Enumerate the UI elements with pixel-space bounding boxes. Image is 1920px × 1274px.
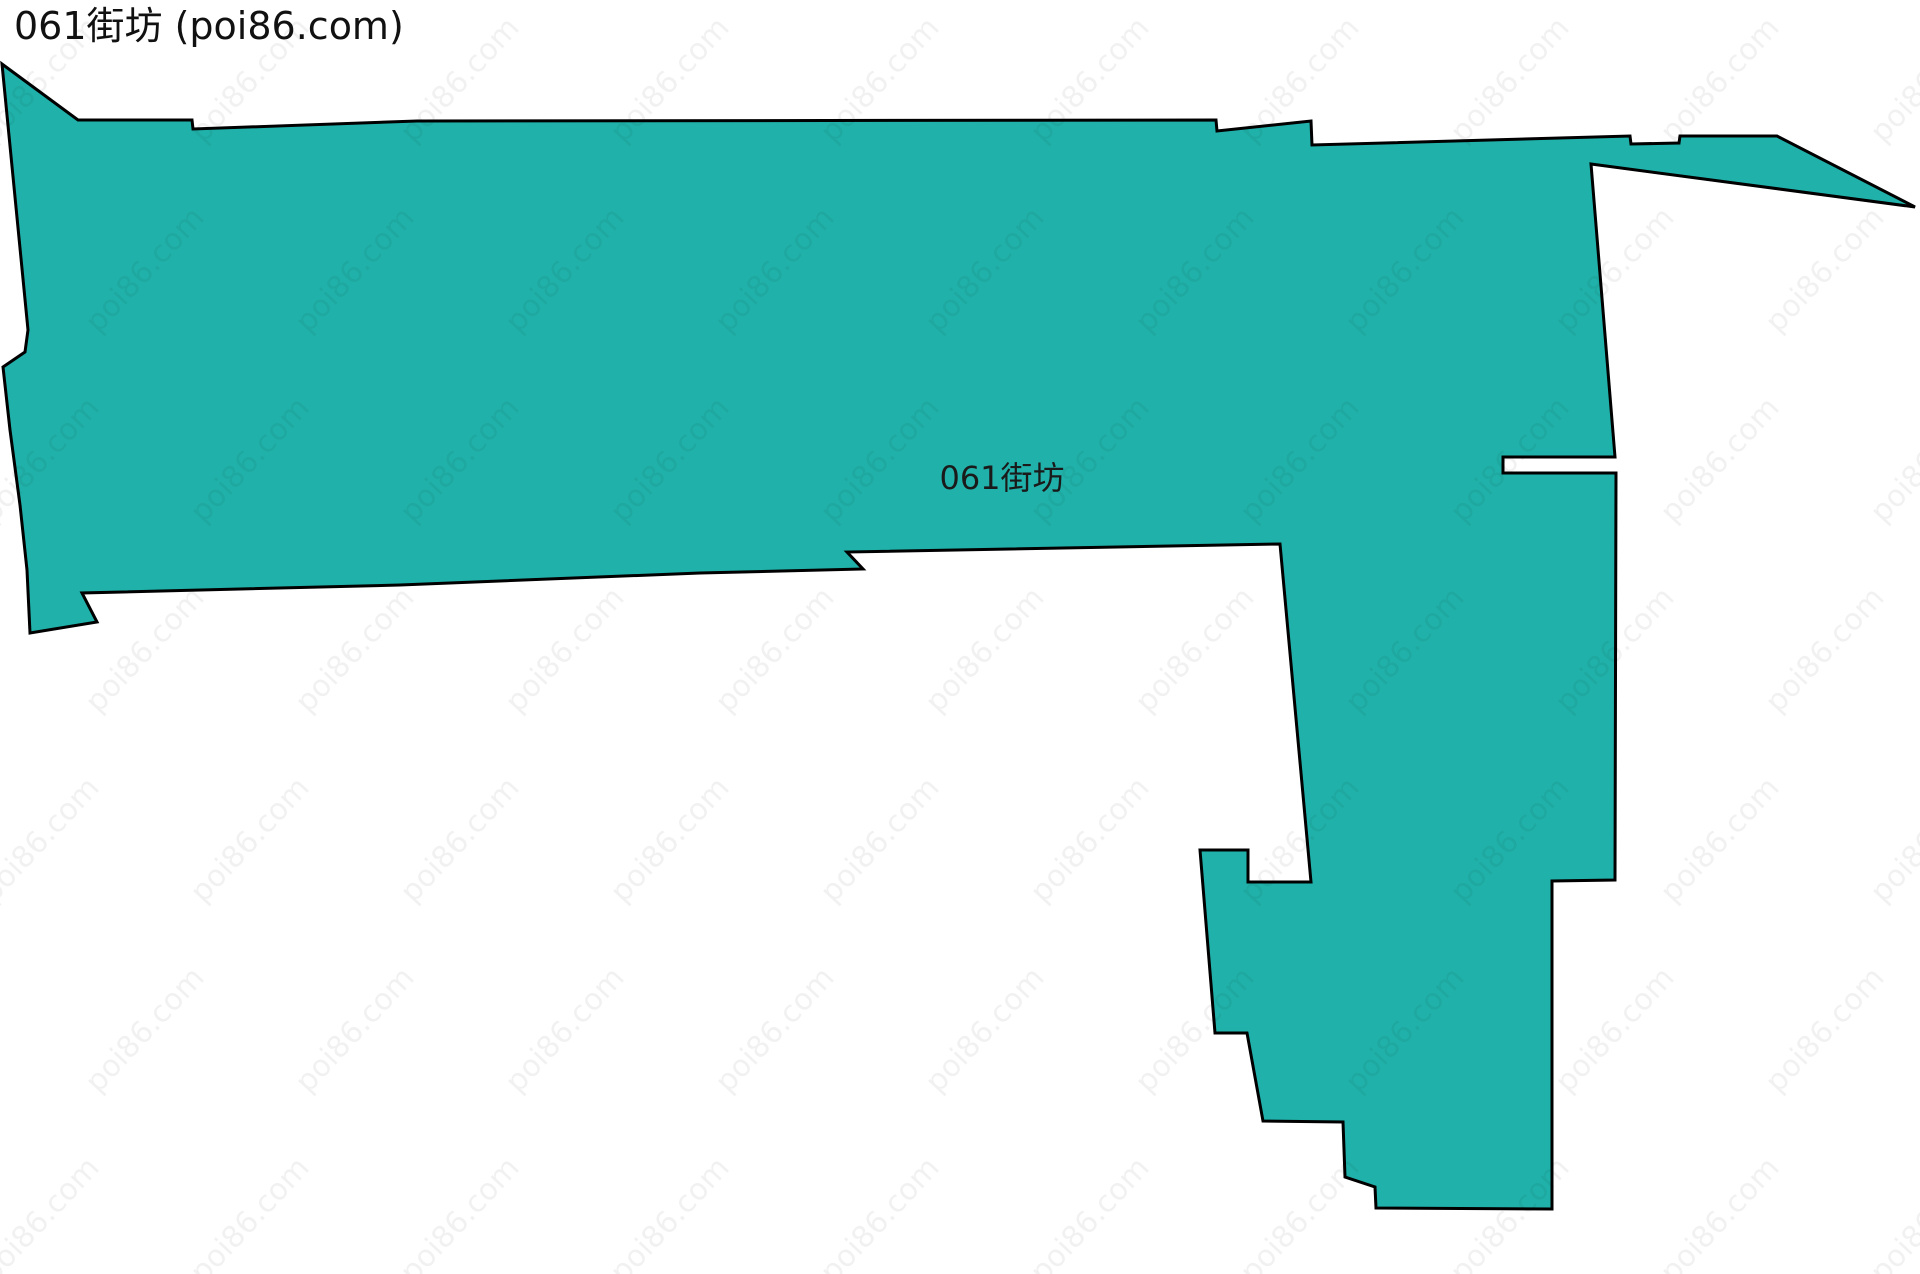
page-title: 061街坊 (poi86.com) xyxy=(14,4,404,50)
region-polygon-061[interactable] xyxy=(2,64,1915,1209)
map-page: 061街坊 poi86.compoi86.compoi86.compoi86.c… xyxy=(0,0,1920,1274)
map-canvas: 061街坊 xyxy=(0,0,1920,1274)
